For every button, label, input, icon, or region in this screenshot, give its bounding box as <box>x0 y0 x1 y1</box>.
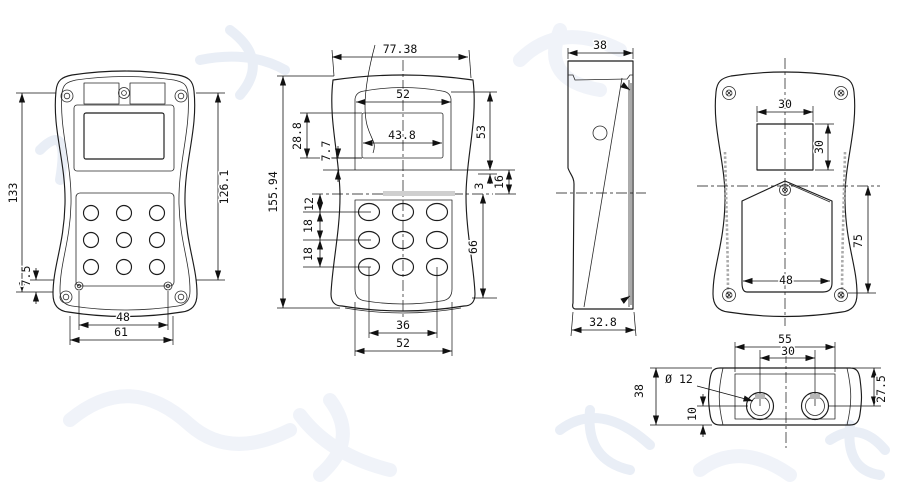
dim-key-pitch-18a: 18 <box>301 219 315 233</box>
back-view-dimensions: 30 30 48 75 <box>743 97 876 293</box>
dim-key-offset-12: 12 <box>302 197 316 211</box>
dim-depth-38: 38 <box>632 384 646 398</box>
dim-cover-width-48: 48 <box>779 273 793 287</box>
dim-recess-gap-3: 3 <box>472 182 486 189</box>
dim-port-span-30: 30 <box>781 344 795 358</box>
dim-base-depth-32-8: 32.8 <box>589 315 617 329</box>
dim-port-height-27-5: 27.5 <box>874 375 888 403</box>
front-view-shaded: 133 126.1 7.5 48 61 <box>6 71 231 345</box>
watermark <box>40 30 885 475</box>
dim-port-dia-12: Ø 12 <box>665 372 693 386</box>
dim-key-pitch-18b: 18 <box>301 247 315 261</box>
dim-keypad-width-52: 52 <box>396 336 410 350</box>
dim-base-width-61: 61 <box>114 325 128 339</box>
dim-port-offset-10: 10 <box>685 407 699 421</box>
dim-display-height-28-8: 28.8 <box>290 122 304 150</box>
dim-screw-span-48: 48 <box>116 310 130 324</box>
battery-contact-slots <box>84 83 165 104</box>
display-window <box>84 113 164 159</box>
dim-waist-gap-16: 16 <box>492 175 506 189</box>
keypad-buttons <box>84 206 165 275</box>
dim-display-width-43-8: 43.8 <box>388 128 416 142</box>
dim-overall-height-155-94: 155.94 <box>266 171 280 213</box>
dim-window-width-30: 30 <box>778 97 792 111</box>
dim-top-width-77-38: 77.38 <box>383 42 418 56</box>
dim-bezel-height-53: 53 <box>474 125 488 139</box>
dim-inner-height-126-1: 126.1 <box>217 170 231 205</box>
dim-overall-height-133: 133 <box>6 183 20 204</box>
front-drawing-dimensions: 77.38 155.94 52 43.8 28.8 7.7 53 3 16 12 <box>266 42 516 356</box>
keypad-panel <box>76 193 174 286</box>
dim-top-depth-38: 38 <box>593 38 607 52</box>
dim-window-height-30: 30 <box>812 140 826 154</box>
front-shaded-dimensions: 133 126.1 7.5 48 61 <box>6 93 231 345</box>
display-bezel <box>74 105 174 171</box>
dim-cover-height-75: 75 <box>851 234 865 248</box>
dim-key-span-36: 36 <box>396 318 410 332</box>
screw-icons-front <box>60 88 187 304</box>
cable-ports <box>747 393 829 420</box>
dim-display-gap-7-7: 7.7 <box>319 141 333 162</box>
diameter-leader <box>697 386 753 401</box>
front-view-drawing: 77.38 155.94 52 43.8 28.8 7.7 53 3 16 12 <box>266 42 516 356</box>
engineering-drawing-sheet: 133 126.1 7.5 48 61 <box>0 0 900 500</box>
parting-line <box>584 78 622 307</box>
dim-bezel-width-52: 52 <box>396 87 410 101</box>
side-hole <box>593 126 607 140</box>
dim-base-offset-7-5: 7.5 <box>19 266 33 287</box>
dim-keypad-height-66: 66 <box>466 240 480 254</box>
recess-band <box>383 191 455 196</box>
back-view: 30 30 48 75 <box>697 58 880 326</box>
break-line <box>365 45 375 153</box>
